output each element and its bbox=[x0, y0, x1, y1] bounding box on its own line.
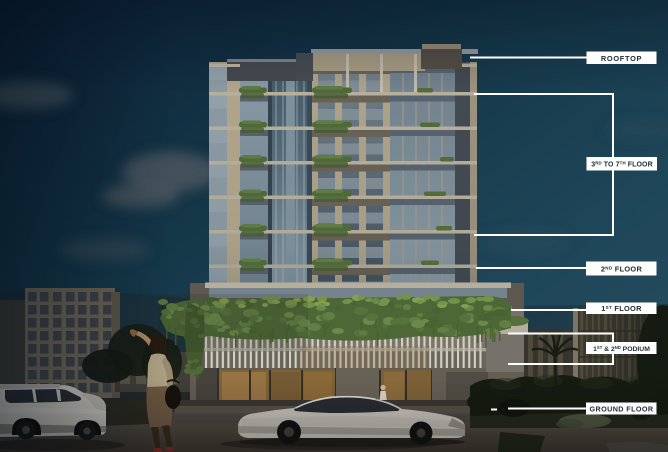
svg-text:1ST & 2ND PODIUM: 1ST & 2ND PODIUM bbox=[593, 345, 650, 353]
svg-text:GROUND FLOOR: GROUND FLOOR bbox=[590, 404, 654, 413]
svg-text:ROOFTOP: ROOFTOP bbox=[601, 54, 642, 63]
